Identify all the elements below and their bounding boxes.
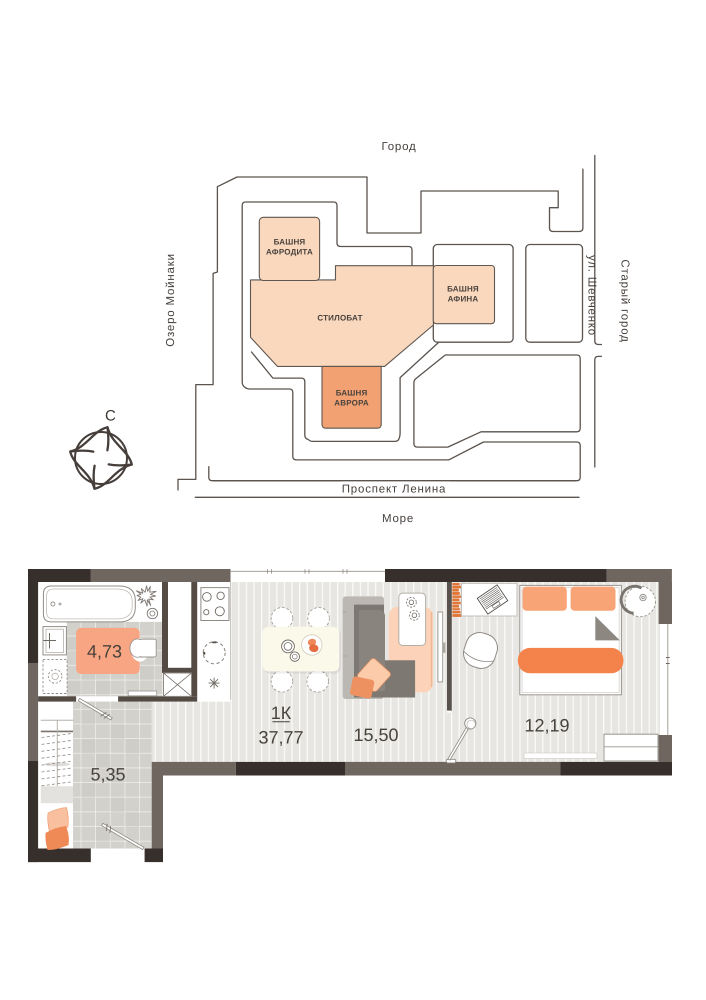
svg-text:Проспект Ленина: Проспект Ленина [342,484,447,496]
svg-text:С: С [105,408,116,425]
svg-text:1К: 1К [271,703,292,723]
svg-text:БАШНЯ: БАШНЯ [447,285,479,294]
svg-text:12,19: 12,19 [524,716,569,736]
svg-text:АФИНА: АФИНА [448,295,479,304]
svg-text:Озеро Мойнаки: Озеро Мойнаки [165,253,177,347]
svg-text:4,73: 4,73 [87,642,122,662]
svg-text:СТИЛОБАТ: СТИЛОБАТ [317,314,362,323]
svg-text:Город: Город [381,141,416,153]
svg-text:АФРОДИТА: АФРОДИТА [266,248,313,257]
svg-text:БАШНЯ: БАШНЯ [336,389,368,398]
svg-text:Старый город: Старый город [619,259,631,342]
svg-text:37,77: 37,77 [258,728,303,748]
svg-text:ул. Шевченко: ул. Шевченко [586,255,598,336]
svg-text:Море: Море [382,513,414,525]
svg-text:БАШНЯ: БАШНЯ [274,238,306,247]
svg-text:15,50: 15,50 [353,725,398,745]
svg-text:5,35: 5,35 [90,765,125,785]
svg-text:АВРОРА: АВРОРА [334,399,369,408]
